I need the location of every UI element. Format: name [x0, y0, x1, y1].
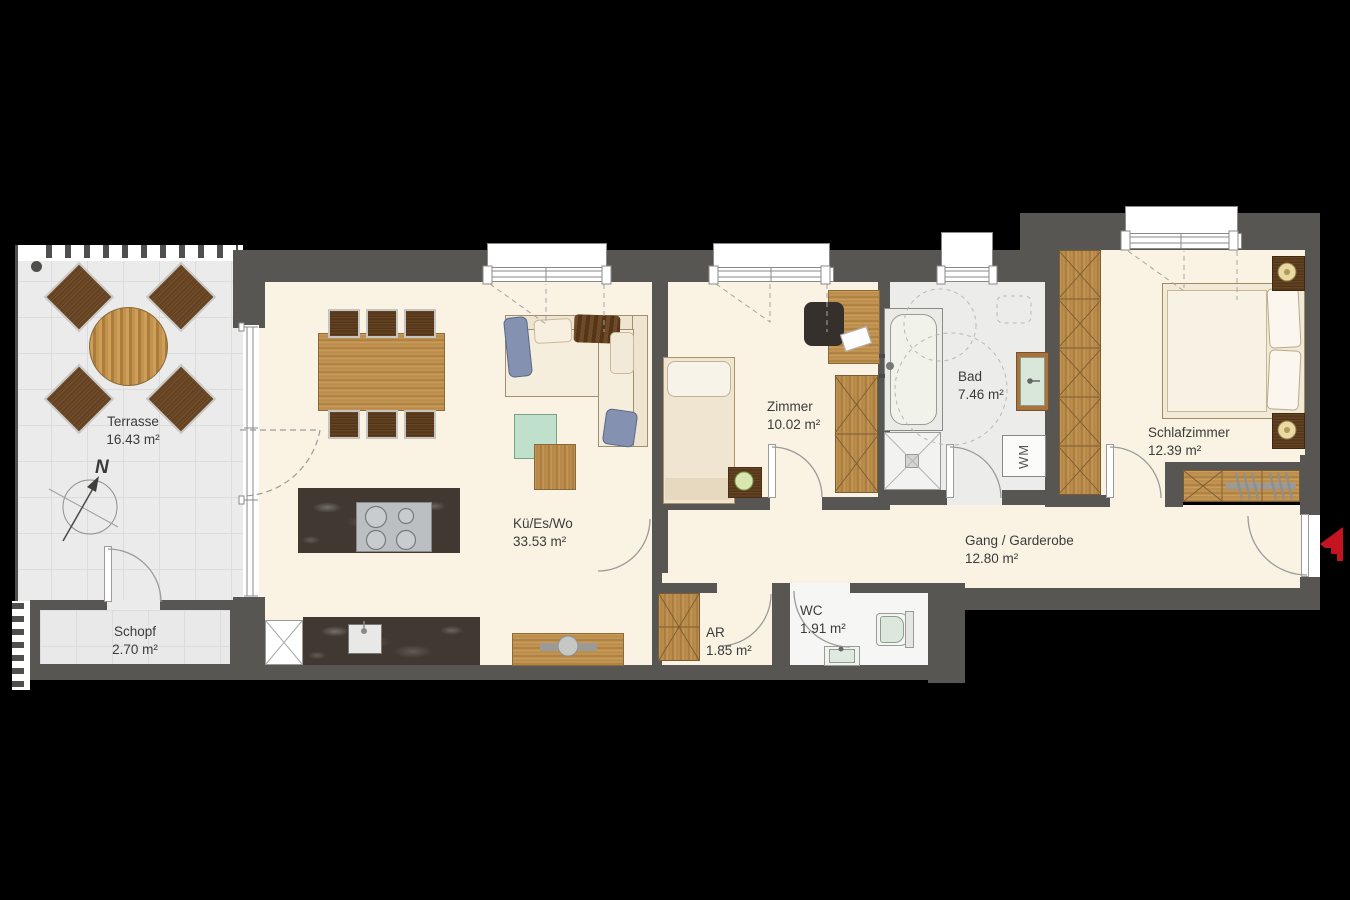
window-bedroom-sill	[1125, 206, 1238, 235]
tv	[540, 643, 597, 651]
wall	[233, 250, 1020, 282]
room-name: Terrasse	[93, 413, 173, 431]
kitchen-counter	[303, 617, 480, 665]
terrace-left-edge	[15, 245, 18, 603]
wall	[1165, 462, 1183, 507]
zimmer-door-gap	[770, 497, 822, 510]
dining-table	[318, 333, 445, 411]
dining-chair	[328, 410, 360, 439]
wall	[850, 583, 928, 593]
room-name: AR	[706, 624, 752, 642]
window-zimmer-sill	[713, 243, 830, 269]
nightstand	[1272, 256, 1305, 291]
zimmer-door-leaf	[768, 444, 776, 498]
ar-shelf	[658, 593, 700, 661]
sofa-pillow	[533, 318, 572, 344]
room-label-gang: Gang / Garderobe 12.80 m²	[965, 532, 1074, 568]
schopf-door-leaf	[104, 546, 112, 602]
terrace-drain-dot	[31, 261, 42, 272]
wall	[1183, 462, 1300, 470]
wall	[1300, 455, 1320, 515]
room-label-bad: Bad 7.46 m²	[958, 368, 1004, 404]
terrace-table	[89, 307, 168, 386]
wc-cistern	[905, 611, 914, 648]
floor-plan: WM	[0, 0, 1350, 900]
wall	[878, 490, 947, 505]
shower-drain	[905, 454, 919, 468]
room-name: Schopf	[95, 623, 175, 641]
window-bad-frame	[937, 267, 997, 282]
room-name: Kü/Es/Wo	[513, 515, 573, 533]
bad-washbasin-bowl	[1020, 357, 1045, 406]
dining-chair	[328, 309, 360, 338]
room-name: WC	[800, 602, 846, 620]
bathtub-inner	[890, 314, 937, 425]
coffee-table-wood	[534, 444, 576, 490]
zimmer-wardrobe	[835, 375, 878, 493]
room-name: Gang / Garderobe	[965, 532, 1074, 550]
window-kitchen-top-frame	[483, 267, 611, 282]
window-kitchen-left	[243, 325, 259, 597]
wall	[772, 583, 790, 665]
dining-chair	[404, 309, 436, 338]
room-label-terrasse: Terrasse 16.43 m²	[93, 413, 173, 449]
single-bed-blanket	[665, 478, 731, 500]
cooktop	[356, 502, 432, 552]
bad-door-leaf	[946, 444, 954, 498]
bedroom-door-leaf	[1106, 444, 1114, 498]
room-area: 12.39 m²	[1148, 442, 1230, 460]
kitchen-sink	[348, 624, 382, 654]
entry-door-leaf	[1301, 514, 1309, 577]
room-area: 1.85 m²	[706, 642, 752, 660]
room-name: Bad	[958, 368, 1004, 386]
wall	[1045, 495, 1110, 507]
entry-arrow-icon	[1320, 527, 1343, 561]
room-area: 1.91 m²	[800, 620, 846, 638]
garderobe-rail	[1226, 483, 1296, 489]
bedroom-door-gap	[1110, 495, 1165, 507]
schopf-railing-left-ticks	[12, 603, 24, 689]
sofa-pillow	[610, 332, 634, 374]
room-label-schlafzimmer: Schlafzimmer 12.39 m²	[1148, 424, 1230, 460]
bedroom-wardrobe	[1059, 250, 1101, 495]
wall	[965, 588, 1320, 610]
washing-machine: WM	[1002, 435, 1046, 477]
window-bedroom-frame	[1121, 233, 1242, 249]
nightstand	[1272, 413, 1305, 449]
wc-toilet-seat	[880, 616, 904, 643]
wc-door-gap	[790, 583, 850, 593]
room-label-kueswo: Kü/Es/Wo 33.53 m²	[513, 515, 573, 551]
room-label-schopf: Schopf 2.70 m²	[95, 623, 175, 659]
wall	[233, 665, 965, 680]
wall	[233, 250, 265, 328]
room-label-zimmer: Zimmer 10.02 m²	[767, 398, 820, 434]
dining-chair	[366, 309, 398, 338]
window-zimmer-frame	[709, 267, 834, 282]
wall	[662, 583, 717, 593]
room-area: 33.53 m²	[513, 533, 573, 551]
room-area: 2.70 m²	[95, 641, 175, 659]
window-bad-sill	[941, 232, 993, 269]
room-area: 12.80 m²	[965, 550, 1074, 568]
zimmer-nightstand	[728, 467, 762, 498]
room-label-ar: AR 1.85 m²	[706, 624, 752, 660]
wall	[928, 583, 965, 683]
wall	[1002, 490, 1045, 505]
compass-north-label: N	[95, 459, 109, 477]
sofa-pillow	[602, 408, 639, 448]
window-kitchen-top-sill	[487, 243, 607, 269]
room-area: 7.46 m²	[958, 386, 1004, 404]
single-bed-pillow	[667, 361, 731, 397]
desk-chair	[804, 302, 844, 346]
dining-chair	[404, 410, 436, 439]
room-name: Zimmer	[767, 398, 820, 416]
room-name: Schlafzimmer	[1148, 424, 1230, 442]
ar-door-gap	[717, 583, 772, 593]
washing-machine-label: WM	[1016, 443, 1031, 468]
kitchen-appliance	[265, 620, 303, 665]
room-area: 10.02 m²	[767, 416, 820, 434]
double-bed-pillow	[1266, 287, 1301, 349]
schopf-door-gap	[107, 600, 160, 610]
terrace-railing-top-ticks	[46, 245, 238, 258]
double-bed-pillow	[1266, 349, 1301, 411]
bad-door-gap	[947, 490, 1002, 505]
wc-washbasin-bowl	[829, 649, 855, 663]
room-label-wc: WC 1.91 m²	[800, 602, 846, 638]
double-bed-duvet	[1167, 290, 1267, 412]
dining-chair	[366, 410, 398, 439]
room-area: 16.43 m²	[93, 431, 173, 449]
